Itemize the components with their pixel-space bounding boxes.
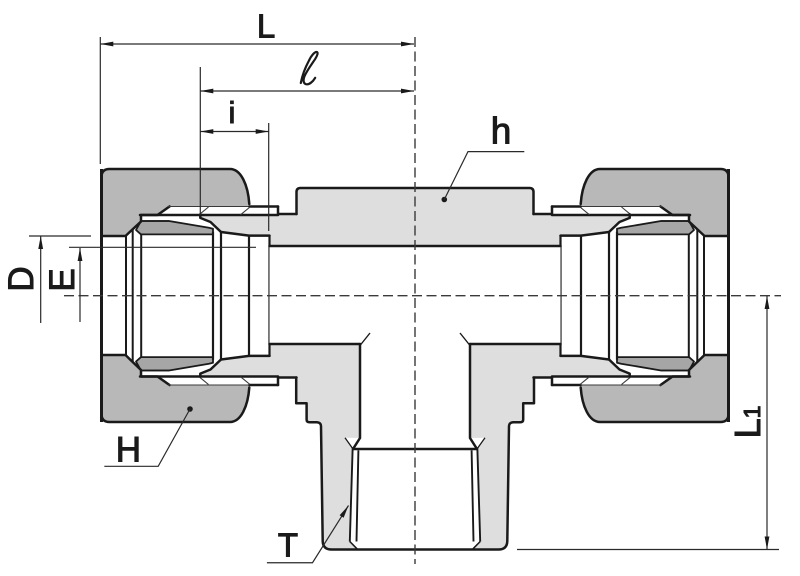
svg-text:D: D [2, 266, 41, 291]
svg-text:i: i [229, 95, 236, 130]
svg-text:T: T [278, 526, 298, 563]
svg-text:H: H [116, 431, 141, 470]
svg-text:h: h [491, 111, 512, 152]
svg-text:L: L [257, 8, 275, 45]
svg-text:E: E [43, 268, 82, 291]
